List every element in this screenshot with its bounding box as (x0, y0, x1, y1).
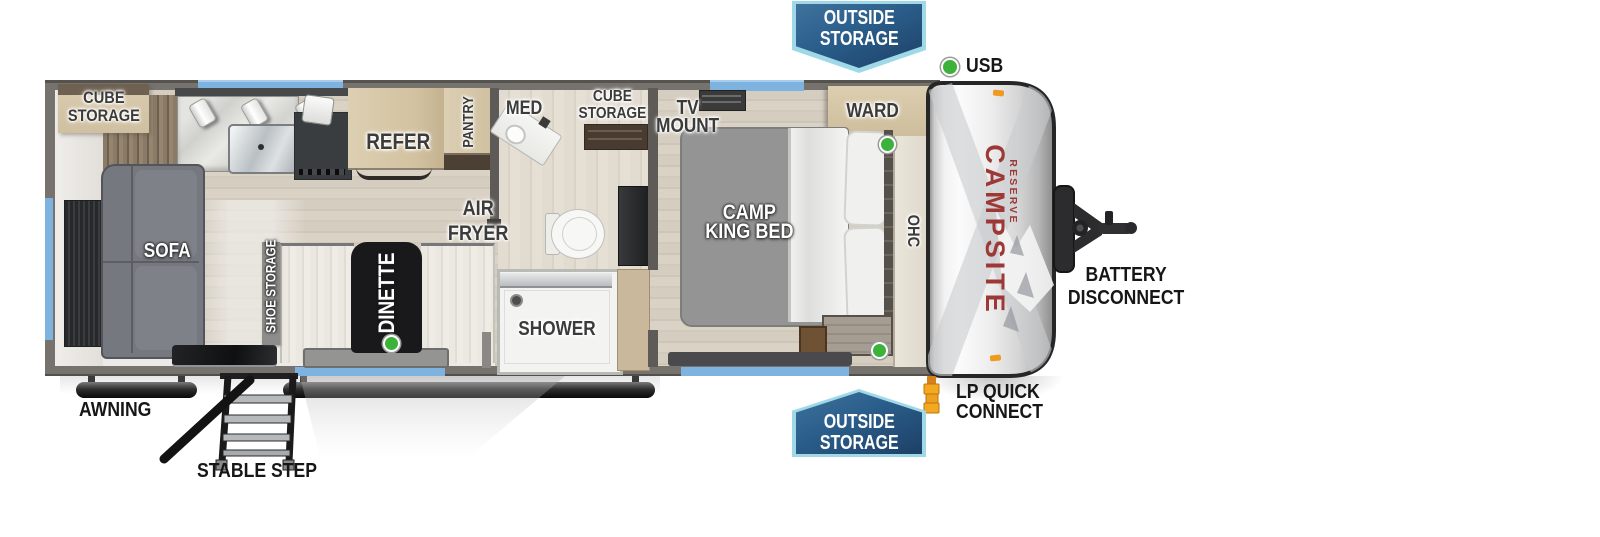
svg-text:RESERVE: RESERVE (1007, 159, 1019, 224)
svg-text:CAMPSITE: CAMPSITE (980, 144, 1010, 316)
